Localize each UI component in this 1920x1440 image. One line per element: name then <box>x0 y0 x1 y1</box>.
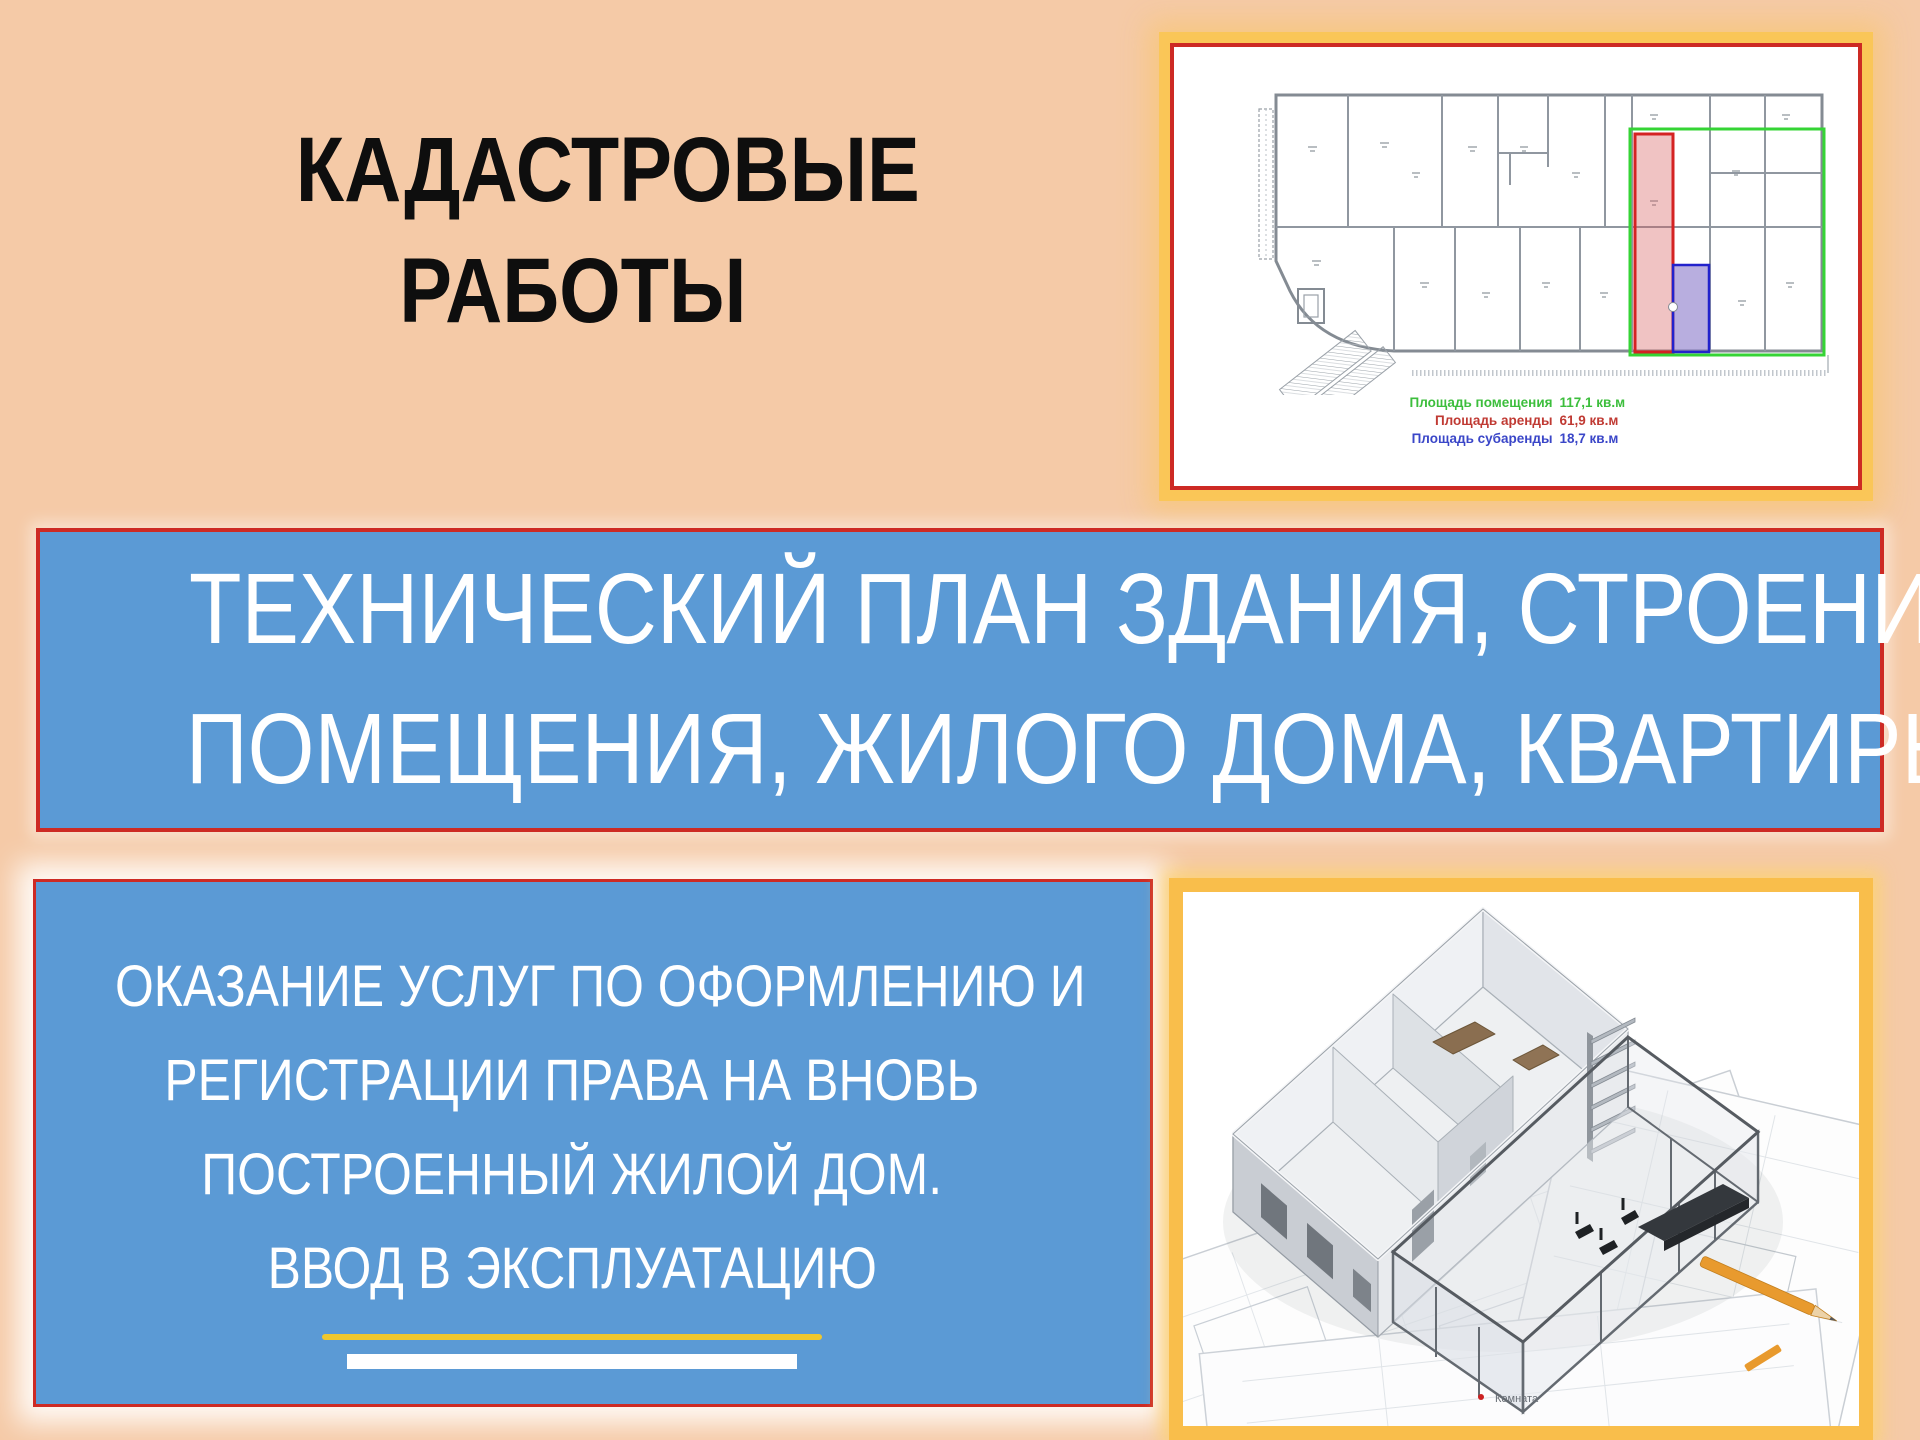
banner-line-1: ТЕХНИЧЕСКИЙ ПЛАН ЗДАНИЯ, СТРОЕНИЯ, <box>40 539 1880 679</box>
house-3d-image: Комната <box>1169 878 1873 1440</box>
house-3d-drawing: Комната <box>1183 892 1859 1426</box>
blueprint-room-caption: Комната <box>1495 1393 1539 1405</box>
tech-plan-banner: ТЕХНИЧЕСКИЙ ПЛАН ЗДАНИЯ, СТРОЕНИЯ, ПОМЕЩ… <box>36 528 1884 832</box>
floorplan-drawing <box>1180 55 1856 395</box>
white-underline <box>347 1354 797 1369</box>
floorplan-legend: Площадь помещения 117,1 кв.м Площадь аре… <box>1174 395 1858 447</box>
purple-area-overlay <box>1673 265 1709 352</box>
legend-row-room: Площадь помещения 117,1 кв.м <box>1375 395 1658 411</box>
slide-title: КАДАСТРОВЫЕ РАБОТЫ <box>245 110 900 353</box>
legend-row-sublease: Площадь субаренды 18,7 кв.м <box>1375 431 1658 447</box>
floorplan-image: Площадь помещения 117,1 кв.м Площадь аре… <box>1170 43 1862 490</box>
services-line-2: РЕГИСТРАЦИИ ПРАВА НА ВНОВЬ <box>36 1034 1108 1128</box>
slide-canvas: КАДАСТРОВЫЕ РАБОТЫ <box>0 0 1920 1440</box>
title-line-2: РАБОТЫ <box>245 231 900 352</box>
services-line-3: ПОСТРОЕННЫЙ ЖИЛОЙ ДОМ. <box>36 1128 1108 1222</box>
title-line-1: КАДАСТРОВЫЕ <box>245 110 900 231</box>
services-line-1: ОКАЗАНИЕ УСЛУГ ПО ОФОРМЛЕНИЮ И <box>36 940 1108 1034</box>
stairs-hatch <box>1280 323 1396 395</box>
banner-line-2: ПОМЕЩЕНИЯ, ЖИЛОГО ДОМА, КВАРТИРЫ <box>40 679 1880 819</box>
red-area-overlay <box>1635 134 1673 352</box>
legend-row-rent: Площадь аренды 61,9 кв.м <box>1375 413 1658 429</box>
services-line-4: ВВОД В ЭКСПЛУАТАЦИЮ <box>36 1222 1108 1316</box>
services-box: ОКАЗАНИЕ УСЛУГ ПО ОФОРМЛЕНИЮ И РЕГИСТРАЦ… <box>33 879 1153 1407</box>
yellow-underline <box>322 1334 822 1340</box>
